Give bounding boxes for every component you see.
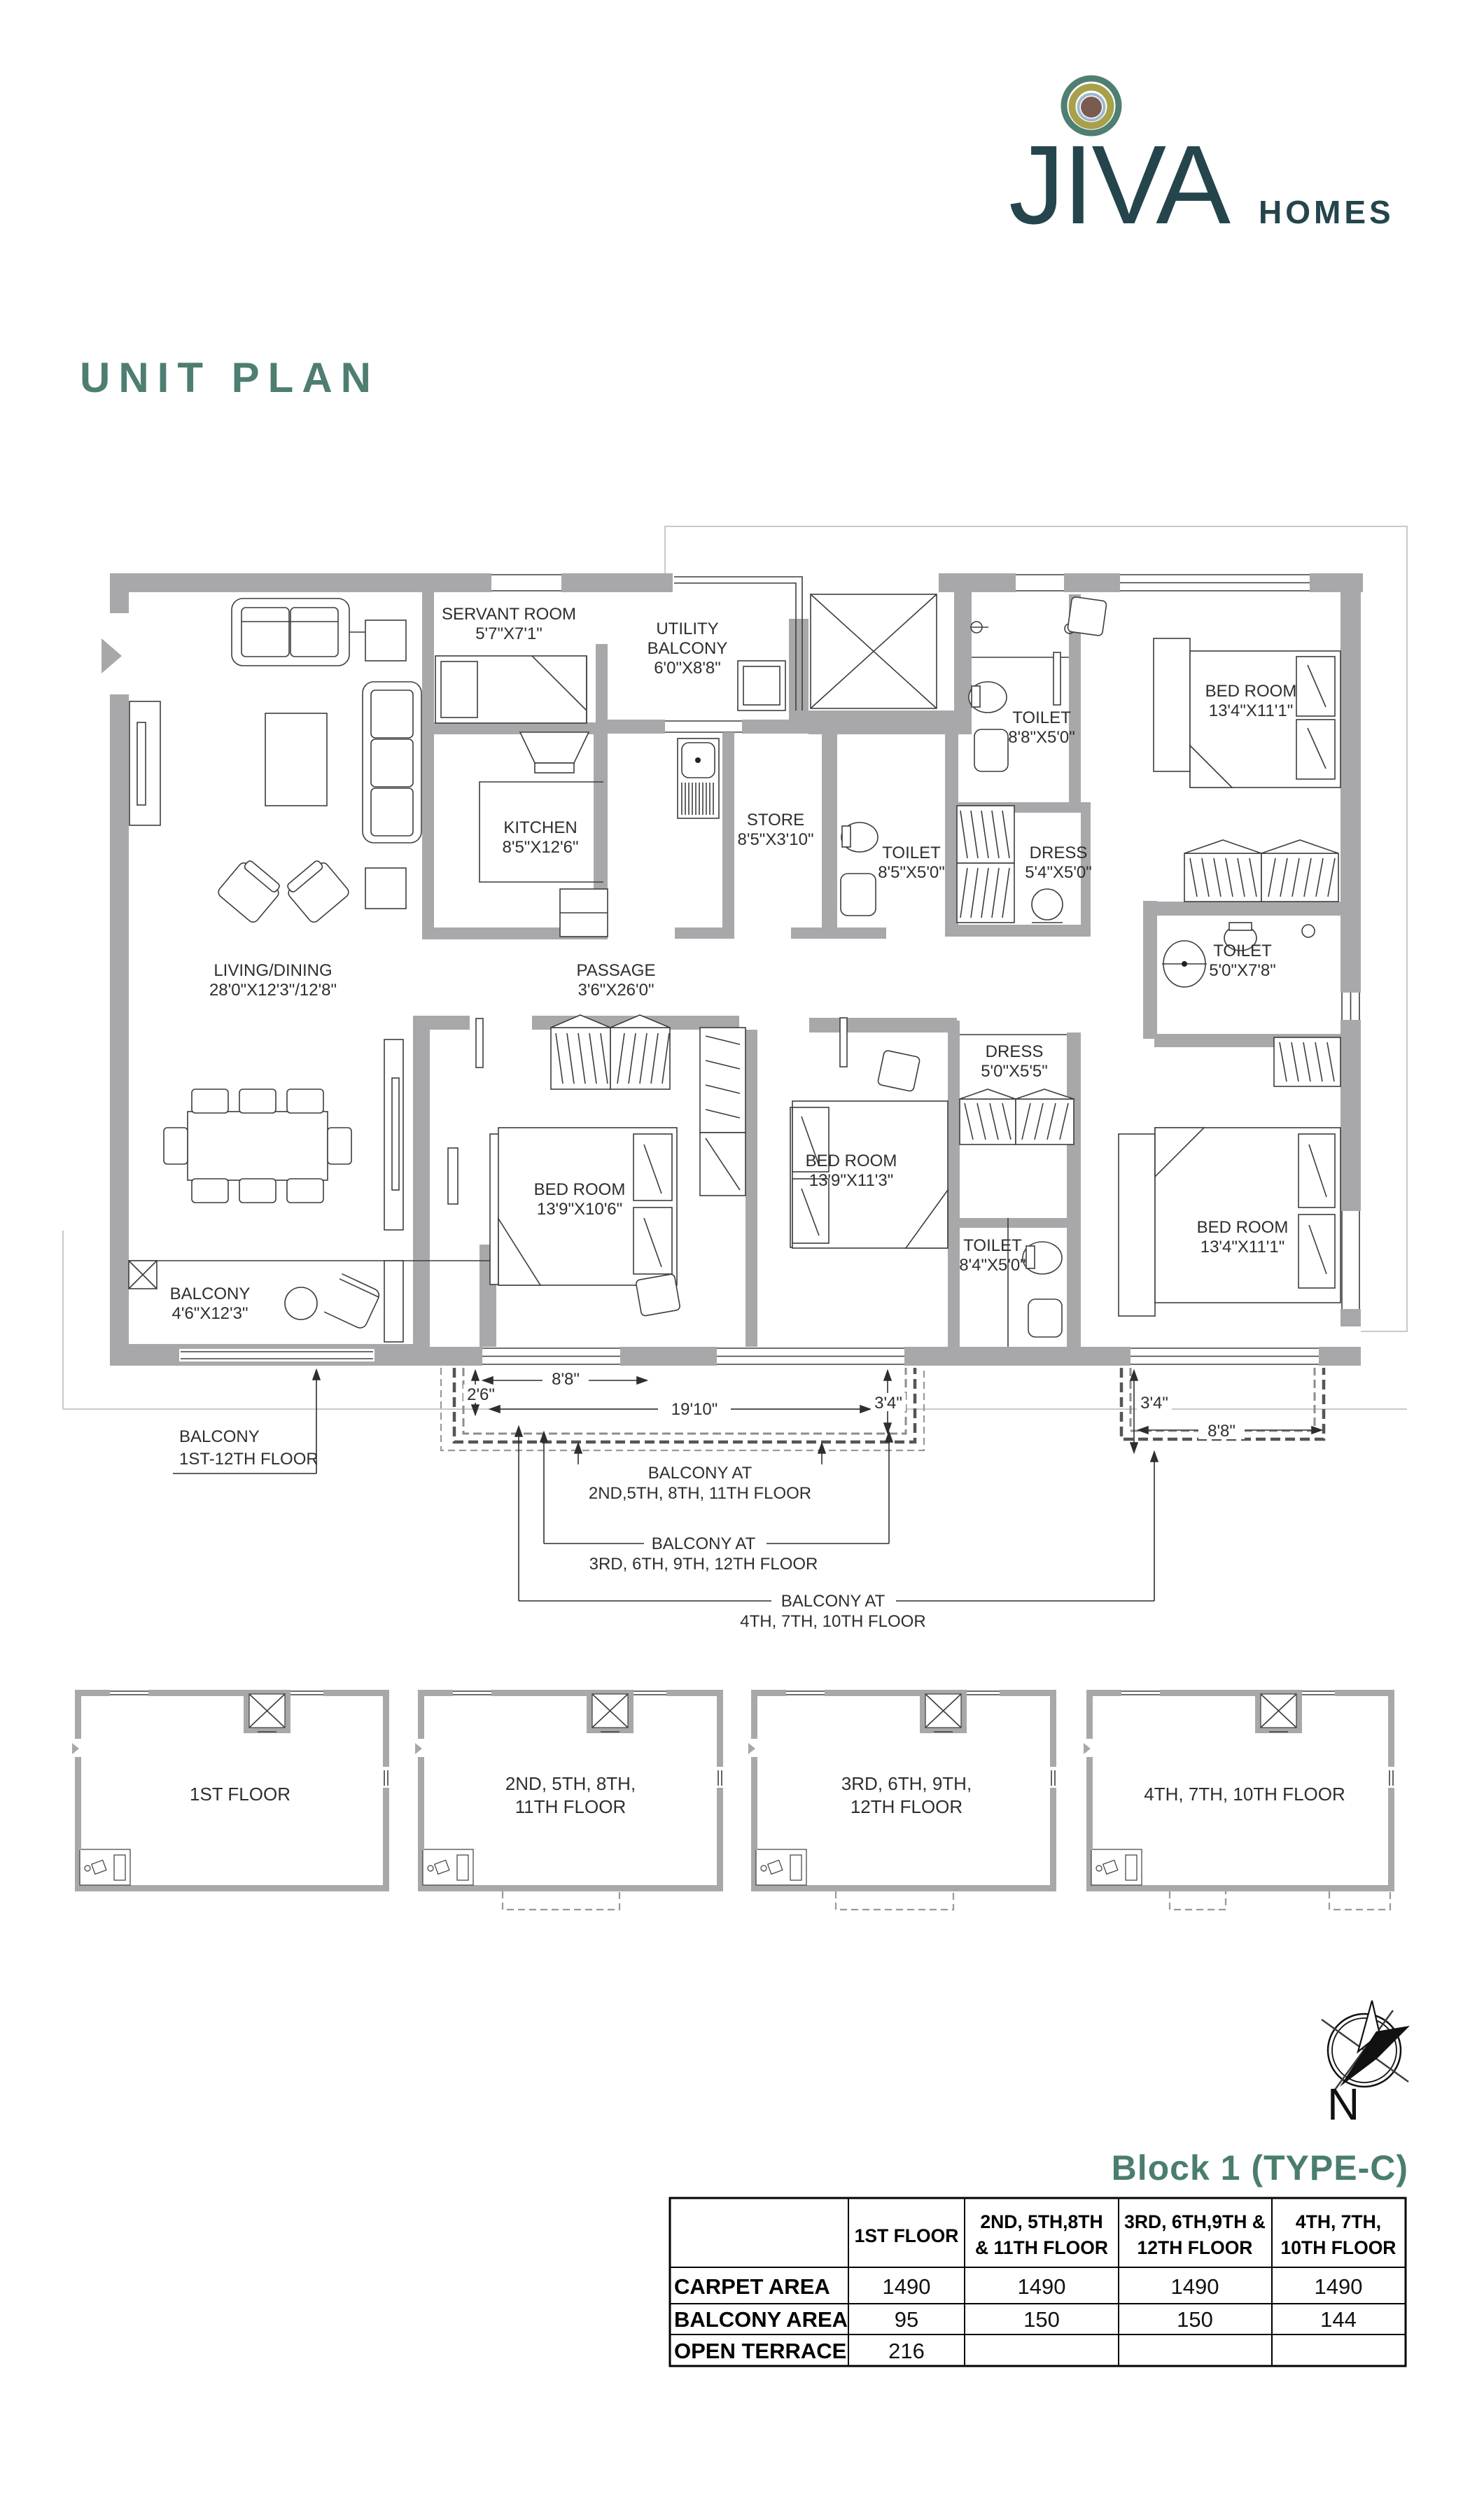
svg-text:BED ROOM: BED ROOM	[534, 1180, 626, 1199]
svg-text:TOILET: TOILET	[1213, 941, 1272, 960]
svg-text:5'0"X5'5": 5'0"X5'5"	[981, 1062, 1048, 1081]
svg-text:TOILET: TOILET	[882, 843, 941, 862]
svg-text:BALCONY AREA: BALCONY AREA	[674, 2307, 848, 2332]
svg-text:& 11TH FLOOR: & 11TH FLOOR	[975, 2237, 1108, 2258]
svg-text:8'8": 8'8"	[1207, 1422, 1235, 1441]
svg-text:8'8": 8'8"	[552, 1370, 580, 1389]
svg-text:BALCONY AT: BALCONY AT	[648, 1464, 752, 1483]
svg-text:8'5"X5'0": 8'5"X5'0"	[878, 863, 945, 882]
svg-text:1490: 1490	[1315, 2274, 1363, 2299]
svg-text:150: 150	[1023, 2307, 1060, 2332]
svg-text:BALCONY AT: BALCONY AT	[652, 1534, 756, 1553]
svg-text:HOMES: HOMES	[1259, 194, 1394, 230]
svg-text:13'9"X11'3": 13'9"X11'3"	[809, 1171, 894, 1190]
svg-text:150: 150	[1177, 2307, 1213, 2332]
svg-text:SERVANT ROOM: SERVANT ROOM	[442, 605, 576, 624]
svg-text:BALCONY AT: BALCONY AT	[781, 1592, 885, 1611]
svg-text:KITCHEN: KITCHEN	[503, 818, 577, 837]
svg-text:8'8"X5'0": 8'8"X5'0"	[1008, 728, 1075, 747]
svg-text:OPEN TERRACE: OPEN TERRACE	[674, 2339, 846, 2363]
svg-text:Block 1 (TYPE-C): Block 1 (TYPE-C)	[1112, 2148, 1408, 2187]
svg-text:8'5"X12'6": 8'5"X12'6"	[503, 838, 579, 857]
svg-text:LIVING/DINING: LIVING/DINING	[213, 961, 332, 980]
svg-text:3'4": 3'4"	[874, 1394, 902, 1413]
svg-text:3RD, 6TH, 9TH, 12TH FLOOR: 3RD, 6TH, 9TH, 12TH FLOOR	[589, 1555, 818, 1574]
svg-text:2ND, 5TH, 8TH,: 2ND, 5TH, 8TH,	[505, 1773, 636, 1794]
svg-text:JIVA: JIVA	[1009, 122, 1231, 247]
svg-text:BED ROOM: BED ROOM	[1197, 1218, 1289, 1237]
svg-text:1490: 1490	[1171, 2274, 1219, 2299]
svg-text:TOILET: TOILET	[1012, 708, 1071, 727]
svg-text:2ND,5TH, 8TH, 11TH FLOOR: 2ND,5TH, 8TH, 11TH FLOOR	[589, 1484, 811, 1503]
svg-text:4'6"X12'3": 4'6"X12'3"	[172, 1304, 248, 1323]
svg-text:144: 144	[1320, 2307, 1357, 2332]
svg-text:12TH FLOOR: 12TH FLOOR	[1137, 2237, 1253, 2258]
svg-text:5'7"X7'1": 5'7"X7'1"	[475, 624, 542, 643]
svg-text:DRESS: DRESS	[986, 1042, 1044, 1061]
svg-text:12TH FLOOR: 12TH FLOOR	[850, 1796, 962, 1817]
svg-text:1ST FLOOR: 1ST FLOOR	[855, 2225, 959, 2246]
svg-text:TOILET: TOILET	[963, 1236, 1022, 1255]
svg-text:6'0"X8'8": 6'0"X8'8"	[654, 659, 721, 678]
svg-text:UTILITY: UTILITY	[656, 619, 718, 638]
svg-text:PASSAGE: PASSAGE	[577, 961, 656, 980]
svg-text:UNIT PLAN: UNIT PLAN	[80, 354, 379, 401]
svg-text:5'4"X5'0": 5'4"X5'0"	[1025, 863, 1092, 882]
svg-text:4TH, 7TH, 10TH FLOOR: 4TH, 7TH, 10TH FLOOR	[1144, 1784, 1345, 1805]
svg-text:28'0"X12'3"/12'8": 28'0"X12'3"/12'8"	[209, 981, 337, 1000]
svg-text:DRESS: DRESS	[1030, 843, 1088, 862]
svg-text:95: 95	[895, 2307, 918, 2332]
svg-text:19'10": 19'10"	[671, 1400, 718, 1419]
svg-text:4TH, 7TH, 10TH FLOOR: 4TH, 7TH, 10TH FLOOR	[740, 1612, 925, 1631]
svg-text:216: 216	[888, 2339, 925, 2363]
svg-text:BALCONY: BALCONY	[647, 639, 728, 658]
svg-text:1ST FLOOR: 1ST FLOOR	[190, 1784, 290, 1805]
svg-text:2'6": 2'6"	[467, 1385, 495, 1404]
svg-text:1ST-12TH FLOOR: 1ST-12TH FLOOR	[179, 1450, 318, 1469]
svg-text:CARPET AREA: CARPET AREA	[674, 2274, 830, 2299]
svg-text:BALCONY: BALCONY	[179, 1427, 260, 1446]
svg-text:STORE: STORE	[747, 811, 804, 829]
svg-text:N: N	[1327, 2079, 1359, 2129]
svg-text:8'4"X5'0": 8'4"X5'0"	[959, 1256, 1026, 1275]
svg-text:8'5"X3'10": 8'5"X3'10"	[738, 830, 814, 849]
svg-text:1490: 1490	[1018, 2274, 1066, 2299]
svg-text:11TH FLOOR: 11TH FLOOR	[515, 1796, 626, 1817]
svg-text:BED ROOM: BED ROOM	[806, 1151, 897, 1170]
svg-text:13'4"X11'1": 13'4"X11'1"	[1200, 1238, 1285, 1256]
svg-text:3'6"X26'0": 3'6"X26'0"	[578, 981, 654, 1000]
svg-text:4TH, 7TH,: 4TH, 7TH,	[1296, 2211, 1381, 2232]
svg-text:BALCONY: BALCONY	[170, 1284, 251, 1303]
svg-text:1490: 1490	[883, 2274, 931, 2299]
svg-text:3'4": 3'4"	[1140, 1394, 1168, 1413]
svg-text:3RD, 6TH, 9TH,: 3RD, 6TH, 9TH,	[841, 1773, 972, 1794]
svg-text:2ND, 5TH,8TH: 2ND, 5TH,8TH	[980, 2211, 1102, 2232]
svg-text:5'0"X7'8": 5'0"X7'8"	[1209, 961, 1276, 980]
svg-text:10TH FLOOR: 10TH FLOOR	[1281, 2237, 1396, 2258]
svg-text:BED ROOM: BED ROOM	[1205, 682, 1297, 701]
svg-text:13'4"X11'1": 13'4"X11'1"	[1209, 701, 1294, 720]
svg-text:13'9"X10'6": 13'9"X10'6"	[537, 1200, 622, 1219]
svg-text:3RD, 6TH,9TH &: 3RD, 6TH,9TH &	[1124, 2211, 1266, 2232]
